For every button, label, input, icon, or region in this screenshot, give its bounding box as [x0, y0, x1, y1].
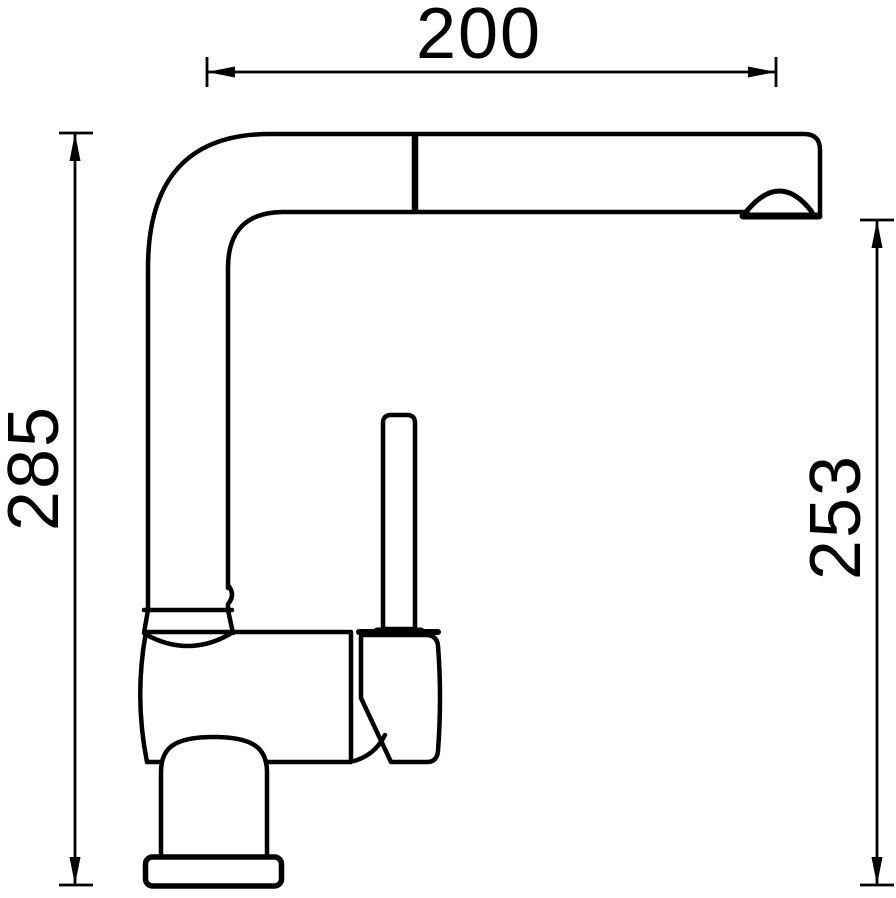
handle-lever: [383, 415, 415, 629]
arrowhead-down: [872, 857, 883, 885]
faucet-technical-drawing: 200 285 253: [0, 0, 896, 898]
handle-mount: [361, 635, 440, 762]
drawing-canvas: 200 285 253: [0, 0, 896, 898]
riser-flare-left: [144, 610, 148, 633]
base-flange: [146, 857, 282, 886]
arrowhead-up: [872, 220, 883, 248]
aerator-dome: [746, 191, 812, 212]
handle-mount-bottom-arc: [354, 735, 385, 761]
spout-inner-contour: [228, 212, 747, 588]
dimension-spout-reach: 200: [207, 0, 776, 87]
dimension-label-spout-reach: 200: [416, 0, 542, 74]
arrowhead-down: [70, 857, 81, 885]
dimension-label-total-height: 285: [0, 405, 74, 531]
arrowhead-right: [748, 67, 776, 78]
arrowhead-up: [70, 133, 81, 161]
riser-detent-bump: [228, 585, 232, 610]
base-riser: [161, 737, 267, 860]
arrowhead-left: [207, 67, 235, 78]
spout-outer-contour: [148, 134, 820, 610]
dimension-label-spout-height: 253: [796, 454, 876, 580]
faucet-outline: [140, 134, 820, 886]
dimension-total-height: 285: [0, 133, 93, 885]
dimension-spout-height: 253: [796, 220, 894, 885]
riser-flare-right: [228, 610, 233, 633]
